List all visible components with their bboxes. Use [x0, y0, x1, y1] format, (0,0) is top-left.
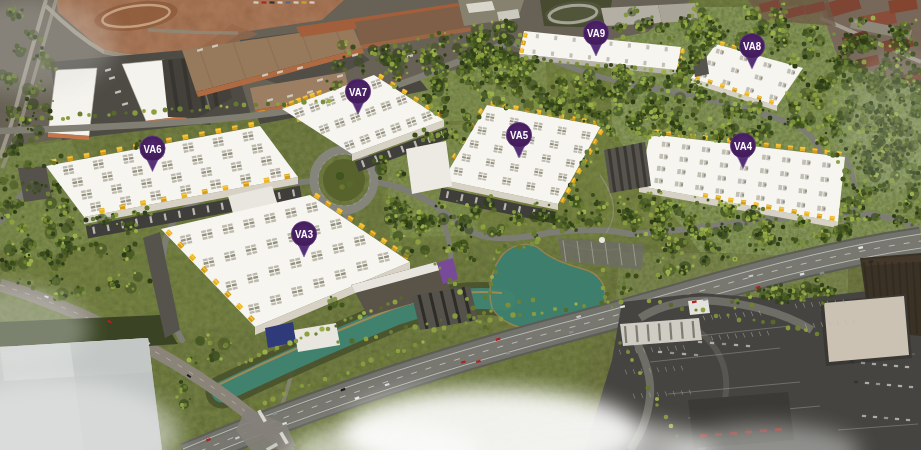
- svg-text:VA8: VA8: [743, 40, 761, 52]
- svg-text:VA9: VA9: [587, 27, 605, 39]
- svg-text:VA7: VA7: [349, 86, 367, 98]
- svg-text:VA6: VA6: [144, 143, 162, 155]
- svg-text:VA3: VA3: [295, 228, 313, 240]
- svg-text:VA4: VA4: [734, 140, 752, 152]
- svg-text:VA5: VA5: [510, 129, 528, 141]
